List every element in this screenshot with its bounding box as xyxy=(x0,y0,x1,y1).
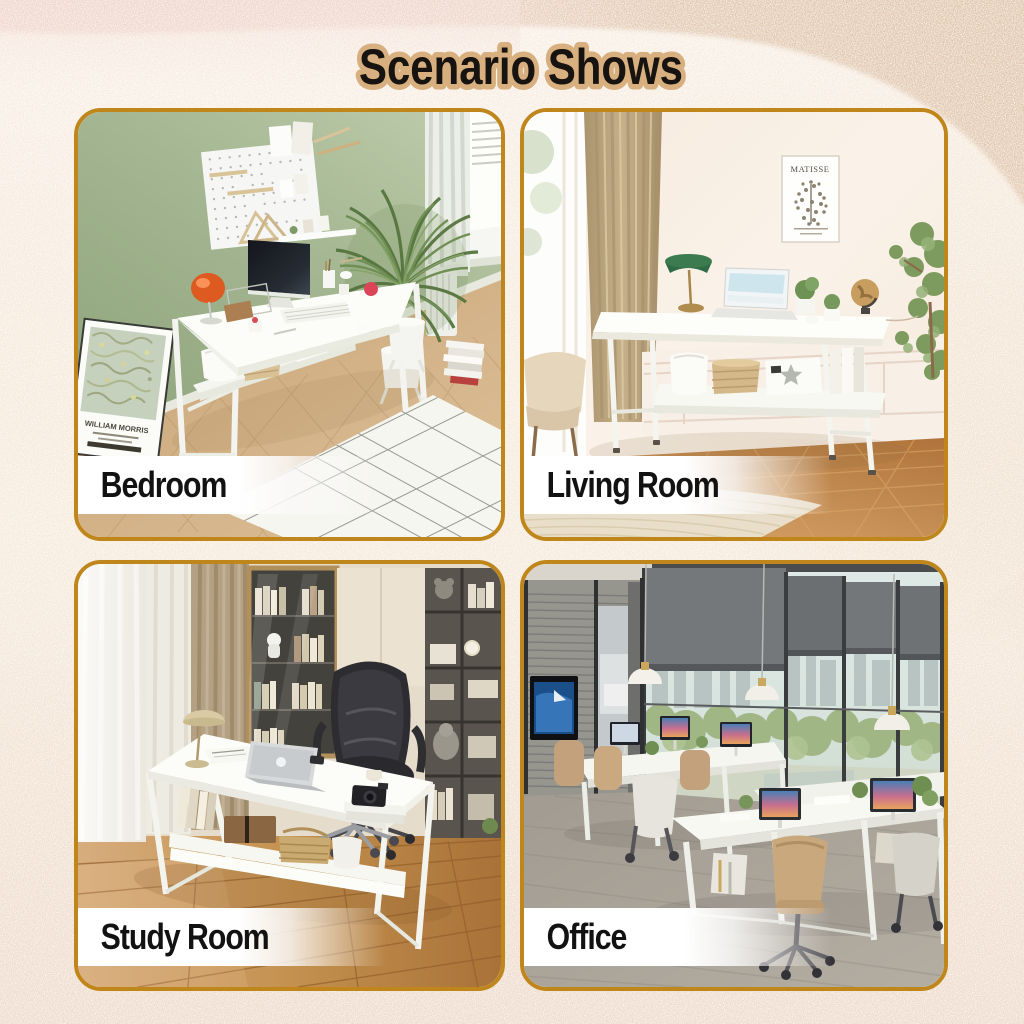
svg-text:Scenario Shows: Scenario Shows xyxy=(359,39,683,95)
svg-text:MATISSE: MATISSE xyxy=(791,164,830,174)
